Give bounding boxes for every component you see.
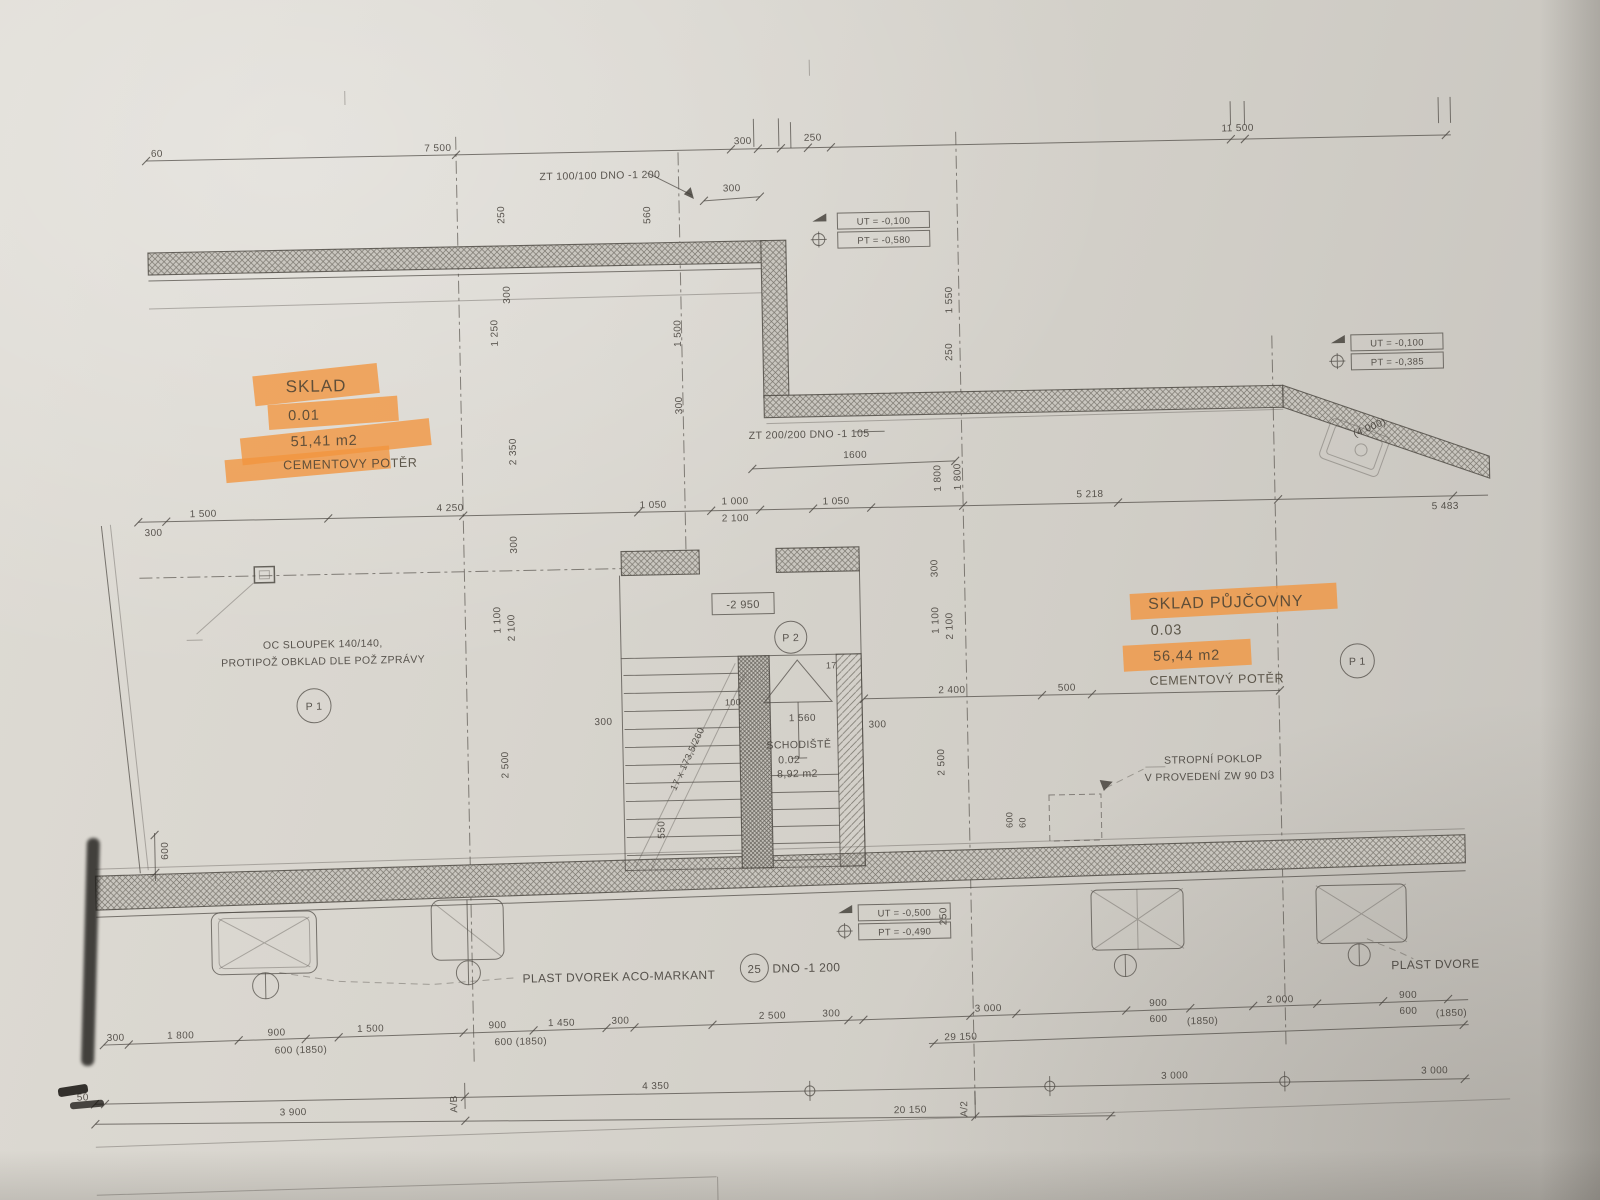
room-number: 0.02 xyxy=(778,754,800,766)
dim-label: 1 500 xyxy=(672,320,684,347)
dim-label: 1 450 xyxy=(548,1018,575,1030)
dim-label: 29 150 xyxy=(944,1032,977,1044)
room-label-sklad: SKLAD 0.01 51,41 m2 CEMENTOVY POTĚR xyxy=(223,362,433,483)
dim-label: 100 xyxy=(725,697,741,707)
dim-label: 2 100 xyxy=(944,612,956,639)
column-note-line1: OC SLOUPEK 140/140, xyxy=(263,637,383,651)
p1-mark: P 1 xyxy=(1349,656,1366,668)
dim-label: 5 483 xyxy=(1432,501,1459,513)
drain-ref-number: 25 xyxy=(748,964,762,976)
floor-plan-drawing: 60 7 500 300 250 11 500 ZT 100/100 DNO -… xyxy=(0,0,1600,1200)
dim-label: 300 xyxy=(674,396,685,414)
dim-label: 3 000 xyxy=(1161,1070,1188,1082)
dim-label: 560 xyxy=(642,206,653,224)
staircase: -2 950 17 x 173,5/260 SCHODIŠTĚ 0.02 8,9… xyxy=(592,590,889,871)
steel-column-note: OC SLOUPEK 140/140, PROTIPOŽ OBKLAD DLE … xyxy=(185,564,425,671)
level-markers: UT = -0,100 PT = -0,580 UT = -0,100 PT =… xyxy=(810,201,1454,940)
axis-label-a2: A/2 xyxy=(959,1101,970,1117)
room-floor-finish: CEMENTOVÝ POTĚR xyxy=(1150,670,1285,688)
dim-label: 2 350 xyxy=(508,438,520,465)
dim-label: 2 500 xyxy=(936,749,948,776)
dim-label: 1600 xyxy=(843,450,867,461)
dim-label: 300 xyxy=(594,717,612,728)
zt-top-note: ZT 100/100 DNO -1 200 300 xyxy=(539,167,764,208)
dim-label: 600 xyxy=(1004,812,1014,828)
level-ut: UT = -0,500 xyxy=(877,907,931,919)
dim-label: 1 500 xyxy=(357,1023,384,1035)
dim-label: 5 218 xyxy=(1076,489,1103,501)
dim-label: 20 150 xyxy=(894,1105,927,1117)
dim-label: 2 100 xyxy=(506,614,518,641)
dim-label: 300 xyxy=(107,1033,125,1044)
dim-label: 1 100 xyxy=(492,606,504,633)
dim-label: 300 xyxy=(929,559,940,577)
zt-note-text: ZT 200/200 DNO -1 105 xyxy=(749,428,870,442)
dim-label: 600 xyxy=(1149,1014,1167,1025)
dim-label: 2 500 xyxy=(759,1010,786,1022)
dim-label: 300 xyxy=(144,528,162,539)
room-area: 8,92 m2 xyxy=(777,768,818,781)
drain-note-left: PLAST DVOREK ACO-MARKANT xyxy=(522,968,715,986)
dim-label: 900 xyxy=(1149,998,1167,1009)
dim-label: 1 550 xyxy=(944,286,956,313)
dim-label: 1 560 xyxy=(789,713,816,725)
walls xyxy=(83,226,1498,917)
dim-label: (1850) xyxy=(1187,1016,1219,1028)
dim-label: 1 050 xyxy=(822,496,849,508)
dim-label: 300 xyxy=(611,1016,629,1027)
dim-label: 300 xyxy=(822,1008,840,1019)
room-area: 51,41 m2 xyxy=(291,433,358,450)
dim-label: 2 400 xyxy=(938,685,965,697)
column-note-line2: PROTIPOŽ OBKLAD DLE POŽ ZPRÁVY xyxy=(221,653,425,670)
level-pt: PT = -0,580 xyxy=(857,235,910,247)
room-label-sklad-pujcovny: SKLAD PŮJČOVNY 0.03 56,44 m2 CEMENTOVÝ P… xyxy=(1121,583,1339,689)
zt-mid-note: ZT 200/200 DNO -1 105 1600 xyxy=(748,426,960,473)
upper-vertical-dims: 250 560 300 1 250 1 500 300 1 550 250 2 … xyxy=(487,188,1389,500)
bottom-dimension-row-1: 300 1 800 900 600 (1850) 1 500 900 600 (… xyxy=(99,989,1469,1064)
dim-label: 60 xyxy=(1017,817,1027,828)
room-number: 0.01 xyxy=(288,408,320,425)
room-area: 56,44 m2 xyxy=(1153,648,1220,665)
dim-label: 2 000 xyxy=(1267,994,1294,1006)
dim-label: 1 100 xyxy=(930,607,942,634)
dim-label: 2 100 xyxy=(722,513,749,525)
dim-label: 300 xyxy=(868,719,886,730)
dim-label: 250 xyxy=(496,206,507,224)
drain-note-right: PLAST DVORE xyxy=(1391,956,1479,972)
room-floor-finish: CEMENTOVY POTĚR xyxy=(283,455,418,473)
sheet-bottom-lines xyxy=(95,1099,1511,1200)
room-number: 0.03 xyxy=(1151,622,1183,639)
dim-label: 900 xyxy=(488,1020,506,1031)
p1-mark: P 1 xyxy=(306,701,323,713)
poklop-note-line1: STROPNÍ POKLOP xyxy=(1164,752,1263,767)
dim-label: 11 500 xyxy=(1221,123,1253,135)
bottom-dimension-row-3: 3 900 20 150 A/2 xyxy=(91,1088,1115,1141)
dim-label: 1 250 xyxy=(489,319,501,346)
level-ut: UT = -0,100 xyxy=(857,216,911,228)
dim-label: 4 250 xyxy=(436,503,463,515)
room-name: SCHODIŠTĚ xyxy=(766,737,831,751)
level-ut: UT = -0,100 xyxy=(1370,337,1424,349)
dim-label: 250 xyxy=(944,343,955,361)
dim-label: 7 500 xyxy=(424,143,451,155)
dim-label: 3 000 xyxy=(975,1003,1002,1015)
drain-channel-notes: PLAST DVOREK ACO-MARKANT 25 DNO -1 200 P… xyxy=(522,939,1480,989)
dim-label: 1 800 xyxy=(167,1030,194,1042)
dim-label: 600 (1850) xyxy=(495,1036,548,1048)
dim-label: 2 500 xyxy=(500,751,512,778)
dim-label: 1 800 xyxy=(932,465,944,492)
p2-mark: P 2 xyxy=(782,632,799,644)
poklop-note-line2: V PROVEDENÍ ZW 90 D3 xyxy=(1145,769,1275,785)
dim-label: 4 350 xyxy=(642,1081,669,1093)
dim-label: 3 000 xyxy=(1421,1065,1448,1077)
dim-label: 50 xyxy=(77,1092,89,1103)
level-pt: PT = -0,385 xyxy=(1371,356,1424,368)
top-dimension-line: 60 7 500 300 250 11 500 xyxy=(140,47,1451,165)
level-pt: PT = -0,490 xyxy=(878,926,931,938)
dim-label: 300 xyxy=(723,183,741,194)
dim-label: 300 xyxy=(509,536,520,554)
dim-label: 900 xyxy=(1399,990,1417,1001)
ceiling-hatch-note: STROPNÍ POKLOP V PROVEDENÍ ZW 90 D3 xyxy=(1048,752,1276,842)
dim-label: 600 (1850) xyxy=(275,1045,328,1057)
drain-note-dno: DNO -1 200 xyxy=(772,960,840,975)
dim-label: 1 500 xyxy=(190,509,217,521)
dim-label: 500 xyxy=(1058,682,1076,693)
dim-label: 1 800 xyxy=(952,463,964,490)
dim-label: 1 000 xyxy=(721,496,748,508)
zt-note-text: ZT 100/100 DNO -1 200 xyxy=(539,169,660,183)
dim-label: 600 xyxy=(160,842,171,860)
scanned-floor-plan-sheet: 60 7 500 300 250 11 500 ZT 100/100 DNO -… xyxy=(0,0,1600,1200)
dim-label: 300 xyxy=(734,136,752,147)
level-value: -2 950 xyxy=(726,599,760,612)
room-name: SKLAD xyxy=(285,376,346,396)
axis-label-ab: A/B xyxy=(449,1095,460,1113)
dim-label: 300 xyxy=(502,286,513,304)
dim-label: 3 900 xyxy=(280,1107,307,1119)
dim-label: 900 xyxy=(268,1027,286,1038)
dim-label: 550 xyxy=(656,821,667,839)
dim-label: 60 xyxy=(151,149,163,160)
riser-count: 17 xyxy=(826,660,837,670)
dim-label: 250 xyxy=(804,132,822,143)
dim-label: (1850) xyxy=(1436,1008,1468,1020)
dim-label: 600 xyxy=(1399,1006,1417,1017)
dim-label: 1 050 xyxy=(639,500,666,512)
